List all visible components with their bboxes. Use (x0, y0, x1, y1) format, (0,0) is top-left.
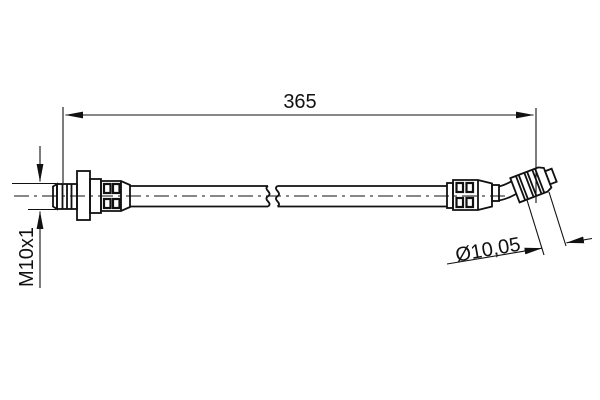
crimp-band (113, 184, 120, 193)
hose-break-edge (266, 186, 269, 207)
crimp-band (457, 183, 464, 192)
crimp-band (467, 198, 474, 207)
diameter-arrow-2 (567, 239, 593, 243)
hose-break-edge (276, 186, 279, 207)
crimp-band (467, 183, 474, 192)
crimp-band (457, 198, 464, 207)
right-fitting (447, 163, 559, 210)
diameter-extension-line-1 (527, 200, 544, 255)
diameter-extension-line-2 (549, 192, 566, 246)
collar-end-cap (492, 185, 499, 201)
thread-dimension: M10x1 (12, 146, 56, 288)
technical-drawing-page: 365 M10x1 Ø10,05 (0, 0, 600, 400)
diameter-dimension-label: Ø10,05 (454, 234, 522, 267)
thread-dimension-label: M10x1 (16, 227, 38, 287)
brake-hose-drawing: 365 M10x1 Ø10,05 (0, 0, 600, 400)
length-dimension-label: 365 (283, 91, 316, 113)
crimp-band (104, 184, 111, 193)
crimp-band (113, 199, 120, 208)
angled-end-fitting (510, 163, 559, 202)
crimp-band (104, 199, 111, 208)
